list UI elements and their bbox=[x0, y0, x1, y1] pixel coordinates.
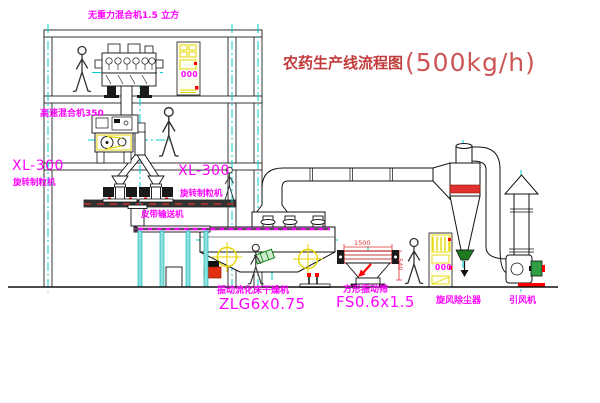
process-flow-screenshot: 农药生产线流程图 (500kg/h) 无重力混合机1.5 立方 高速混合机350… bbox=[0, 0, 600, 403]
label-granulator-right-model: XL-300 bbox=[178, 164, 230, 178]
cyclone-red-band bbox=[450, 185, 480, 193]
drawing-title: 农药生产线流程图 (500kg/h) bbox=[283, 48, 536, 77]
label-belt-conveyor: 皮带输送机 bbox=[141, 211, 184, 220]
label-fan: 引风机 bbox=[509, 297, 536, 306]
fan-motor bbox=[531, 261, 542, 276]
label-dryer-model: ZLG6x0.75 bbox=[219, 297, 306, 312]
label-sieve-model: FS0.6x1.5 bbox=[336, 295, 415, 310]
control-cabinet-2 bbox=[429, 233, 453, 287]
label-granulator-left-model: XL-300 bbox=[12, 159, 64, 173]
label-granulator-left-name: 旋转制粒机 bbox=[13, 179, 56, 188]
cyclone-discharge-valve bbox=[456, 250, 474, 260]
stack-cap bbox=[505, 175, 538, 194]
title-text: 农药生产线流程图 bbox=[283, 52, 403, 73]
label-granulator-right-name: 旋转制粒机 bbox=[180, 190, 223, 199]
person-figure bbox=[406, 239, 423, 284]
control-cabinet-1 bbox=[177, 42, 200, 95]
title-capacity: (500kg/h) bbox=[405, 48, 536, 77]
granulator-right bbox=[139, 176, 173, 202]
induced-draft-fan bbox=[506, 255, 545, 287]
label-cyclone: 旋风除尘器 bbox=[436, 297, 481, 306]
panel2-display: 000 bbox=[435, 264, 452, 272]
granulator-left bbox=[103, 176, 137, 202]
dimension-sieve-height: 540 bbox=[397, 258, 404, 270]
exhaust-stack bbox=[505, 175, 538, 255]
person-figure bbox=[160, 108, 178, 157]
fluid-bed-dryer bbox=[200, 212, 335, 288]
label-high-speed-mixer: 高速混合机350 bbox=[40, 110, 104, 119]
dimension-sieve-length: 1500 bbox=[354, 240, 371, 247]
discharge-arrow-icon bbox=[461, 270, 469, 277]
exhaust-duct bbox=[256, 168, 433, 213]
label-gravity-free-mixer: 无重力混合机1.5 立方 bbox=[88, 12, 179, 21]
gravity-free-mixer bbox=[95, 44, 163, 115]
panel1-display: 000 bbox=[181, 71, 198, 79]
square-vibrating-sieve bbox=[337, 244, 402, 287]
person-figure bbox=[74, 47, 91, 92]
